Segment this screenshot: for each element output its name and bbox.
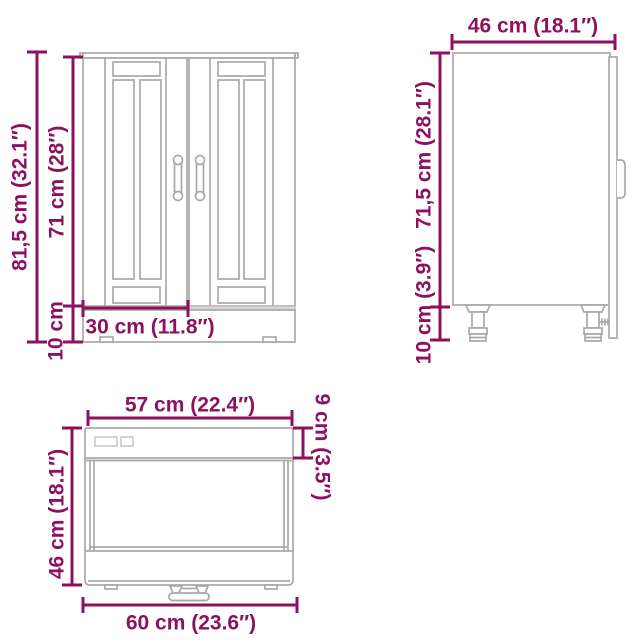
label-top-door-offset: 9 cm (3.5″) (312, 394, 333, 501)
top-outline (85, 428, 293, 585)
left-door (83, 58, 187, 306)
label-top-total-width: 60 cm (23.6″) (126, 613, 256, 634)
label-front-door-width: 30 cm (11.8″) (85, 317, 214, 338)
label-front-total-height: 81,5 cm (32.1″) (10, 123, 31, 271)
top-view-drawing (85, 428, 293, 601)
side-door-panel (609, 57, 617, 338)
left-door-handle (174, 156, 183, 201)
side-carcass (453, 53, 610, 305)
top-door-handle (169, 586, 209, 601)
dimension-diagram: 81,5 cm (32.1″) 71 cm (28″) 10 cm 30 cm … (0, 0, 640, 640)
side-view-drawing (453, 53, 625, 341)
foot-tab-right (263, 337, 276, 342)
label-front-door-height: 71 cm (28″) (47, 126, 68, 239)
right-door-handle (196, 156, 205, 201)
label-front-plinth-height: 10 cm (46, 301, 67, 361)
adjustable-foot-back (581, 305, 609, 341)
side-door-handle (617, 160, 625, 198)
foot-tab-right (265, 585, 277, 589)
label-side-depth: 46 cm (18.1″) (468, 16, 598, 37)
label-side-body-height: 71,5 cm (28.1″) (414, 81, 435, 229)
right-door (189, 58, 295, 306)
label-top-depth: 46 cm (18.1″) (47, 449, 68, 579)
front-view-drawing (80, 53, 298, 342)
adjustable-foot-front (466, 305, 490, 341)
label-top-body-width: 57 cm (22.4″) (125, 395, 255, 416)
foot-tab-left (105, 585, 117, 589)
label-side-leg-height: 10 cm (3.9″) (414, 246, 435, 365)
